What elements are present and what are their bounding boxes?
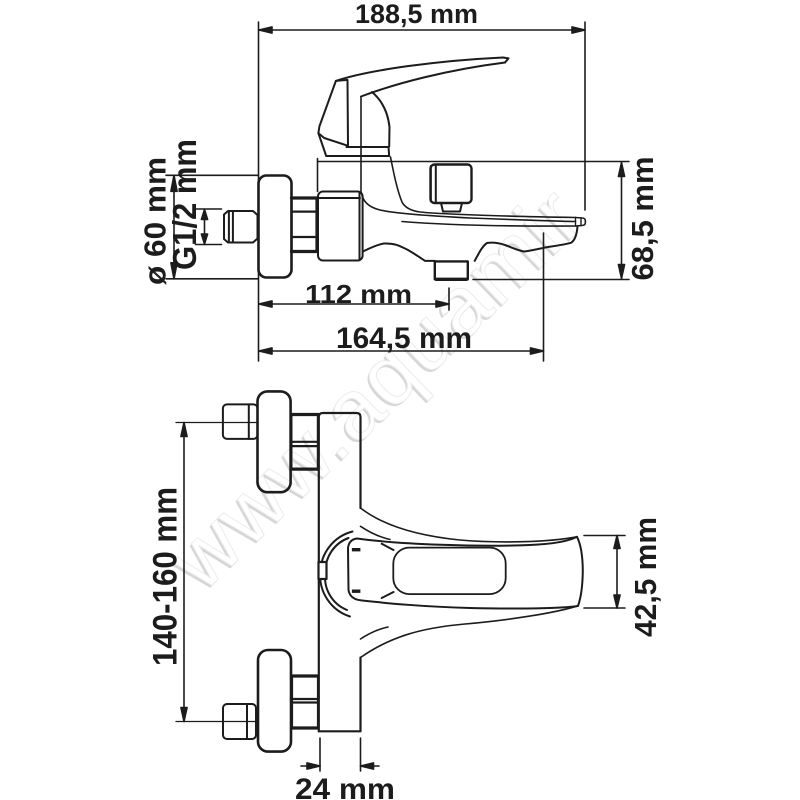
svg-text:140-160 mm: 140-160 mm xyxy=(147,487,185,666)
svg-text:164,5 mm: 164,5 mm xyxy=(336,322,472,355)
svg-text:42,5 mm: 42,5 mm xyxy=(628,517,663,637)
svg-text:G1/2 mm: G1/2 mm xyxy=(166,139,203,270)
svg-text:112 mm: 112 mm xyxy=(305,279,412,309)
svg-text:68,5 mm: 68,5 mm xyxy=(625,157,660,281)
svg-text:24 mm: 24 mm xyxy=(295,773,395,800)
svg-text:188,5 mm: 188,5 mm xyxy=(355,0,478,29)
